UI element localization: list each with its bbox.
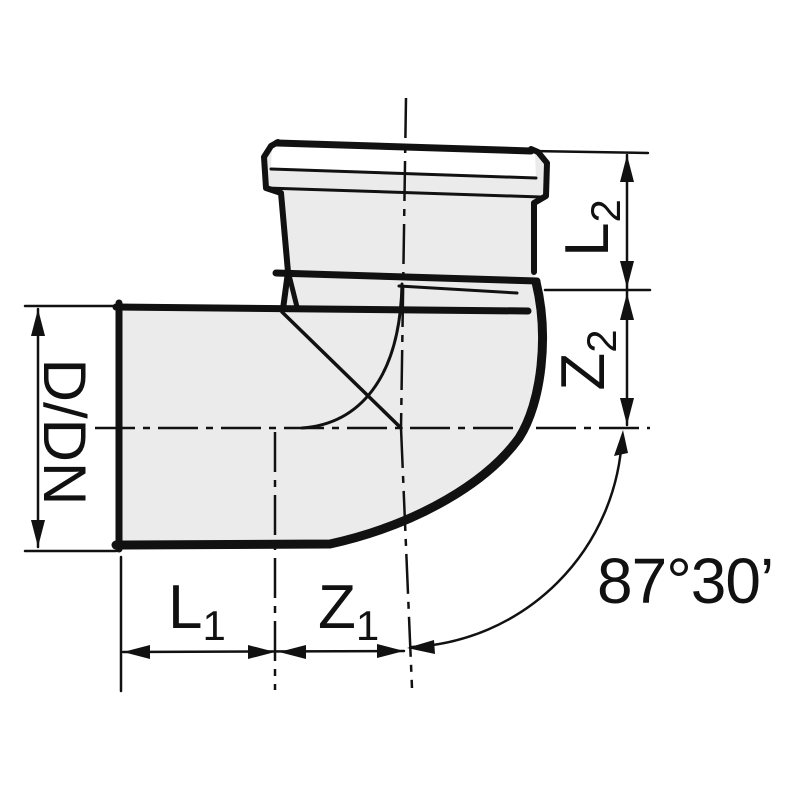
label-l1: L1 [168, 573, 226, 649]
label-angle: 87°30’ [597, 545, 773, 617]
arrowhead-angle-arc-top [614, 430, 628, 456]
label-z1: Z1 [318, 573, 379, 649]
arrowhead-z1-left [279, 645, 306, 659]
arrowhead-diameter-top [31, 309, 45, 336]
fitting-body [119, 142, 547, 545]
drawing-canvas: D/DN L1 Z1 L2 Z2 87°30’ [0, 0, 800, 800]
label-diameter: D/DN [31, 359, 98, 506]
arrowhead-l1-left [123, 645, 150, 659]
arrowhead-z2-top [620, 293, 634, 320]
arrowhead-z2-bottom [620, 398, 634, 425]
label-z2: Z2 [549, 329, 625, 390]
arrowhead-l2-bottom [620, 261, 634, 288]
arrowhead-diameter-bottom [31, 520, 45, 547]
pipe-top-edge [116, 307, 528, 311]
arrowhead-l2-top [620, 155, 634, 182]
arrowhead-z1-right [377, 644, 404, 658]
label-l2: L2 [553, 199, 629, 257]
fitting-fills [119, 142, 547, 545]
pipe-bend-diagram: D/DN L1 Z1 L2 Z2 87°30’ [0, 0, 800, 800]
arrowhead-l1-right [248, 645, 275, 659]
extension-line-l2-top [531, 151, 648, 153]
